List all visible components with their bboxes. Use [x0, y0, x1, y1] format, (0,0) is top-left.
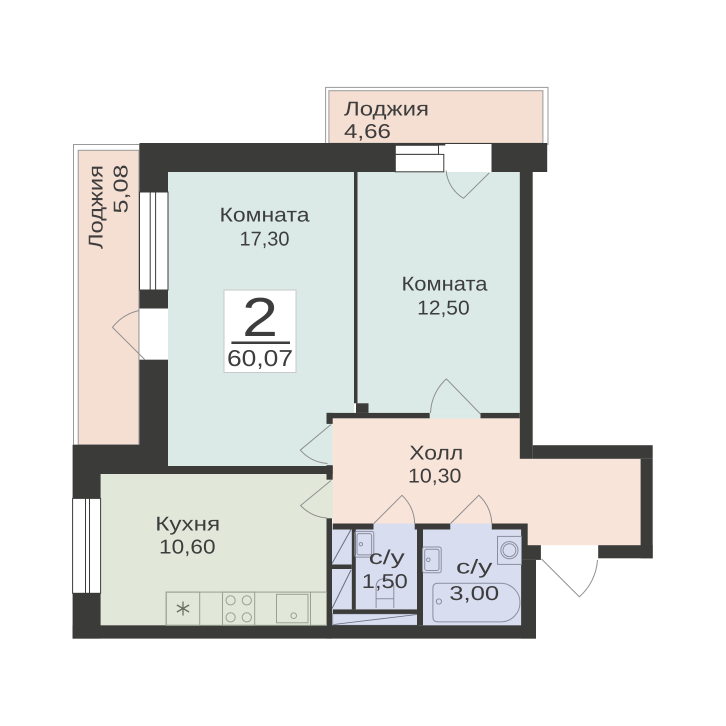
svg-text:4,66: 4,66 — [344, 121, 391, 143]
svg-text:Холл: Холл — [409, 443, 463, 465]
svg-text:60,07: 60,07 — [227, 345, 293, 371]
svg-text:10,30: 10,30 — [408, 465, 462, 487]
svg-text:Лоджия: Лоджия — [344, 99, 429, 121]
svg-text:Комната: Комната — [402, 273, 489, 295]
svg-text:5,08: 5,08 — [111, 165, 133, 214]
svg-text:1,50: 1,50 — [362, 571, 408, 593]
svg-text:Кухня: Кухня — [155, 513, 220, 535]
svg-text:3,00: 3,00 — [449, 583, 499, 605]
svg-text:10,60: 10,60 — [159, 537, 216, 559]
svg-text:17,30: 17,30 — [240, 229, 290, 251]
svg-text:Комната: Комната — [220, 204, 311, 226]
svg-text:с/у: с/у — [369, 547, 405, 569]
svg-text:Лоджия: Лоджия — [86, 165, 108, 249]
svg-text:с/у: с/у — [456, 557, 493, 579]
svg-text:2: 2 — [242, 286, 278, 348]
svg-text:12,50: 12,50 — [417, 298, 470, 320]
